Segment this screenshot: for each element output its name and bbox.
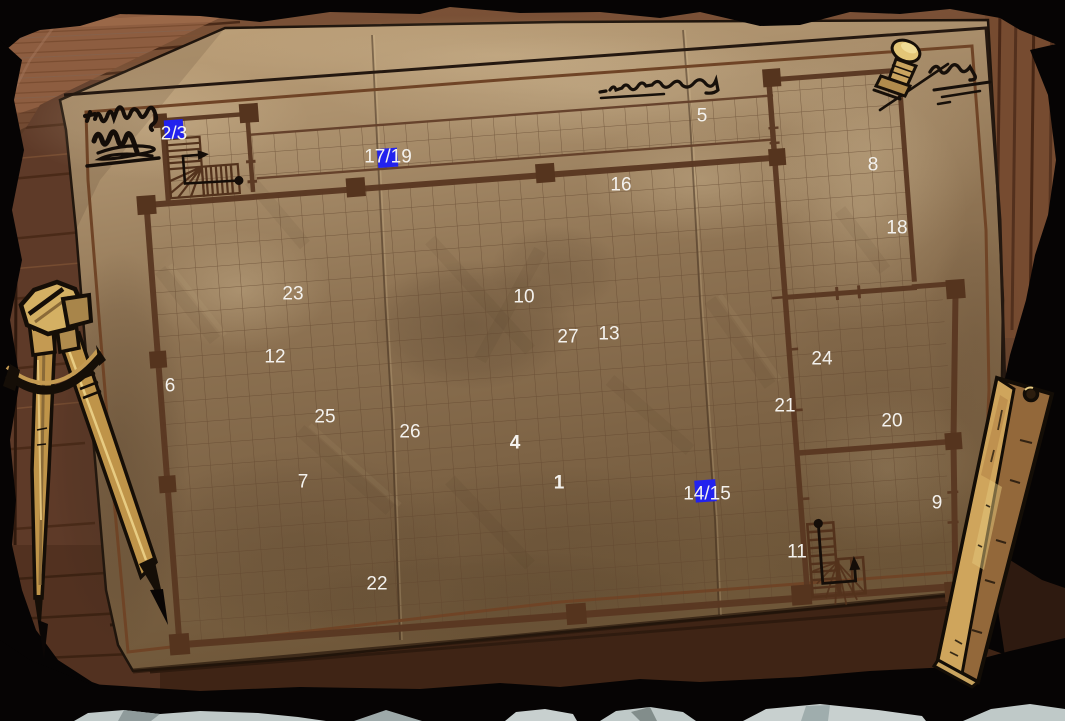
svg-text:22: 22 <box>366 574 387 595</box>
svg-text:16: 16 <box>610 175 631 196</box>
svg-text:4: 4 <box>510 433 521 454</box>
svg-text:13: 13 <box>598 324 619 345</box>
svg-text:1: 1 <box>554 473 565 494</box>
svg-text:27: 27 <box>557 327 578 348</box>
svg-text:8: 8 <box>868 155 879 176</box>
svg-text:23: 23 <box>282 284 303 305</box>
svg-text:25: 25 <box>314 407 335 428</box>
svg-text:20: 20 <box>881 411 902 432</box>
svg-text:6: 6 <box>165 376 176 397</box>
svg-text:21: 21 <box>774 396 795 417</box>
svg-text:12: 12 <box>264 347 285 368</box>
svg-text:7: 7 <box>298 472 309 493</box>
svg-text:2/3: 2/3 <box>161 124 187 145</box>
svg-text:10: 10 <box>513 287 534 308</box>
svg-text:5: 5 <box>697 106 708 127</box>
svg-text:14/15: 14/15 <box>683 484 731 505</box>
svg-text:11: 11 <box>787 542 807 563</box>
svg-text:24: 24 <box>811 349 833 370</box>
svg-text:26: 26 <box>399 422 420 443</box>
svg-text:17/19: 17/19 <box>364 147 412 168</box>
svg-text:9: 9 <box>932 493 943 514</box>
svg-text:18: 18 <box>886 218 907 239</box>
